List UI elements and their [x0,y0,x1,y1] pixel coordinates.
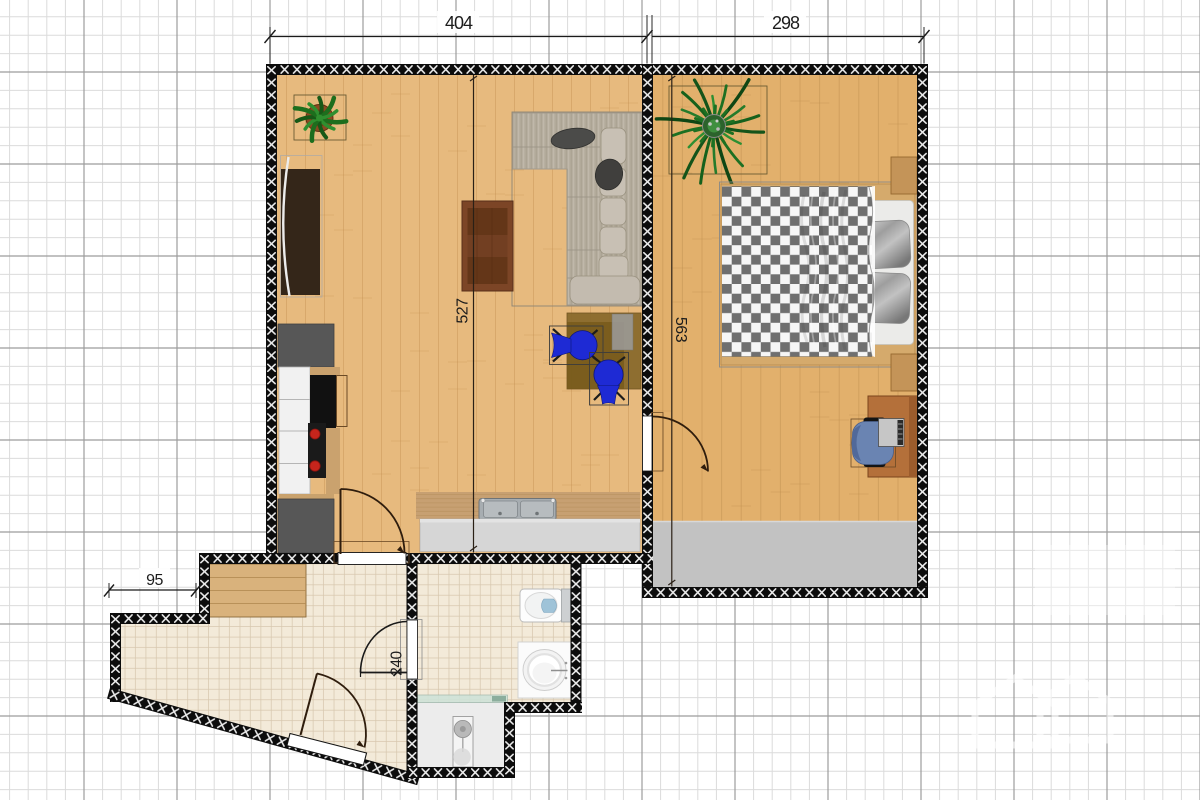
svg-text:404: 404 [445,13,473,33]
svg-text:95: 95 [146,572,163,589]
svg-text:563: 563 [672,317,689,343]
svg-text:527: 527 [455,298,472,324]
svg-text:240: 240 [389,650,406,675]
svg-text:298: 298 [772,13,800,33]
